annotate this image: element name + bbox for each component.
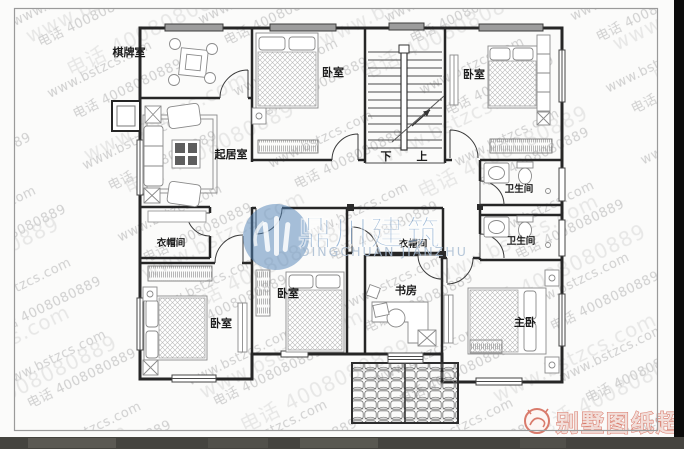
wardrobe <box>256 270 270 316</box>
right-letterbox-bar <box>674 0 684 449</box>
room-label-bathroom-upper: 卫生间 <box>505 183 534 195</box>
room-label-living-room: 起居室 <box>214 147 248 161</box>
bay-window <box>112 101 140 131</box>
terrace <box>352 353 458 423</box>
room-label-bedroom-bottom-middle: 卧室 <box>277 286 299 300</box>
brand-badge-label: 别墅图纸超市 <box>555 410 684 437</box>
room-label-master-bedroom: 主卧 <box>514 315 536 329</box>
room-label-game-room: 棋牌室 <box>112 45 146 59</box>
terrace-step <box>388 353 423 363</box>
room-label-bathroom-lower: 卫生间 <box>507 235 536 247</box>
screenshot-root: www.bstzcs.com 电话 4008080889 www.bstzcs.… <box>0 0 684 449</box>
room-label-cloakroom-left: 衣帽间 <box>157 237 186 249</box>
room-label-study: 书房 <box>395 283 417 297</box>
room-label-bedroom-bottom-left: 卧室 <box>210 316 232 330</box>
stairs-up-label: 上 <box>417 149 428 163</box>
stair-rail <box>401 48 407 150</box>
floor-plan-svg: www.bstzcs.com 电话 4008080889 www.bstzcs.… <box>0 0 684 449</box>
room-label-bedroom-top-right: 卧室 <box>463 67 485 81</box>
stairs-down-label: 下 <box>381 150 392 163</box>
bottom-letterbox-bar <box>0 437 684 449</box>
room-label-bedroom-top-middle: 卧室 <box>322 65 344 79</box>
center-logo-en-text: DINGCHUAN JIANZHU <box>300 244 468 259</box>
